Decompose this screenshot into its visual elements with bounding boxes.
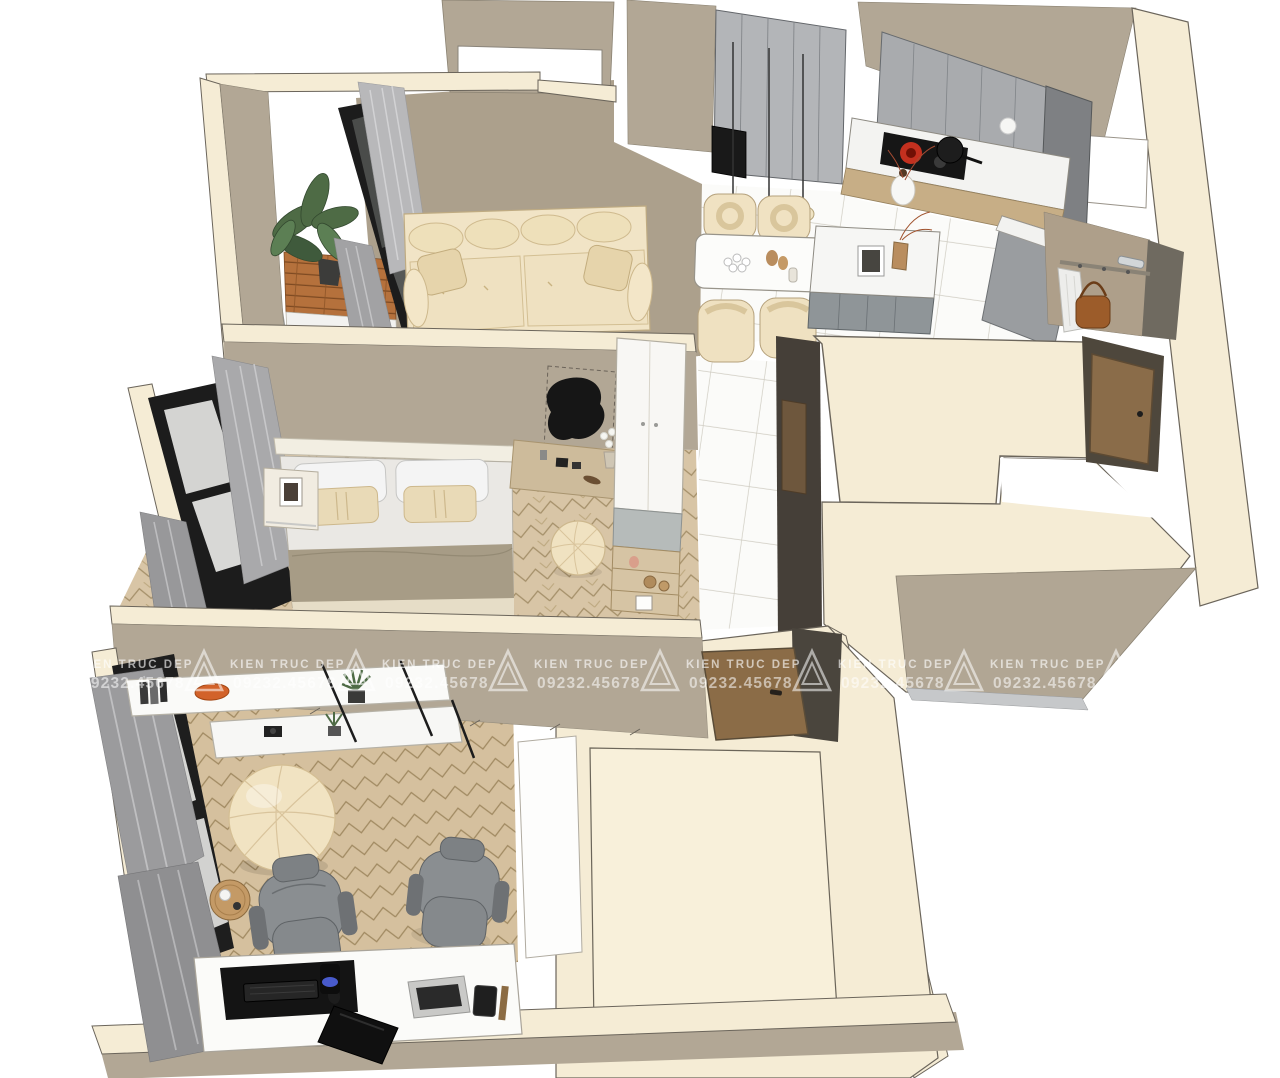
- watermark-brand-text: KIEN TRUC DEP: [78, 659, 193, 671]
- peach-vase: [629, 556, 639, 568]
- dining-table: [694, 234, 824, 292]
- kitchen-island: [808, 212, 940, 334]
- white-wall-slab: [518, 736, 582, 958]
- living-kitchen-wall-face: [627, 0, 716, 152]
- sofa: [402, 206, 655, 338]
- tablet: [473, 985, 497, 1016]
- storage-roof-slab: [590, 748, 838, 1028]
- white-wardrobe: [614, 338, 686, 514]
- watermark-phone-text: 09232.45678: [993, 675, 1097, 692]
- watermark-phone-text: 09232.45678: [841, 675, 945, 692]
- side-table: [210, 880, 250, 920]
- plant-pot: [348, 690, 365, 703]
- sofa-pillow: [582, 244, 633, 292]
- watermark-phone-text: 09232.45678: [385, 675, 489, 692]
- brown-bag: [1076, 296, 1110, 328]
- entrance-door: [1090, 354, 1154, 464]
- round-pouf: [551, 521, 605, 578]
- wood-shelves: [611, 546, 680, 616]
- cream-pillow: [404, 485, 477, 522]
- black-pot: [937, 137, 963, 163]
- wood-bowl: [659, 581, 669, 591]
- nightstand: [264, 468, 318, 530]
- watermark-brand-text: KIEN TRUC DEP: [838, 659, 953, 671]
- watermark-brand-text: KIEN TRUC DEP: [230, 659, 345, 671]
- small-art-print: [636, 596, 652, 610]
- watermark-brand-text: KIEN TRUC DEP: [1142, 659, 1257, 671]
- watermark-brand-text: KIEN TRUC DEP: [382, 659, 497, 671]
- small-vase: [1000, 118, 1016, 134]
- watermark-unit: KIEN TRUC DEP 09232.45678: [1250, 651, 1280, 692]
- floor-plan-svg: KIEN TRUC DEP 09232.45678 KIEN TRUC DEP …: [0, 0, 1280, 1078]
- bathroom-door-panel: [782, 400, 806, 494]
- dresser-gray: [613, 508, 682, 552]
- watermark-phone-text: 09232.45678: [81, 675, 185, 692]
- laptop-keys: [416, 984, 462, 1010]
- triangle-logo-icon: [34, 651, 70, 690]
- floor-plan-render: KIEN TRUC DEP 09232.45678 KIEN TRUC DEP …: [0, 0, 1280, 1078]
- watermark-phone-text: 09232.45678: [689, 675, 793, 692]
- watermark-brand-text: KIEN TRUC DEP: [990, 659, 1105, 671]
- island-base: [808, 292, 934, 334]
- watermark-brand-text: KIEN TRUC DEP: [686, 659, 801, 671]
- black-organic-mirror: [547, 377, 605, 439]
- watermark-phone-text: 09232.45678: [537, 675, 641, 692]
- watermark-phone-text: 09232.45678: [233, 675, 337, 692]
- wood-bowl: [644, 576, 656, 588]
- built-in-oven: [712, 126, 746, 178]
- watermark-unit: KIEN TRUC DEP 09232.45678: [1098, 651, 1257, 692]
- island-bottle: [892, 242, 908, 270]
- watermark-phone-text: 09232.45678: [1145, 675, 1249, 692]
- cup: [220, 890, 231, 901]
- blue-glow: [322, 977, 338, 987]
- entrance-door-handle: [1137, 411, 1143, 417]
- watermark-brand-text: KIEN TRUC DEP: [534, 659, 649, 671]
